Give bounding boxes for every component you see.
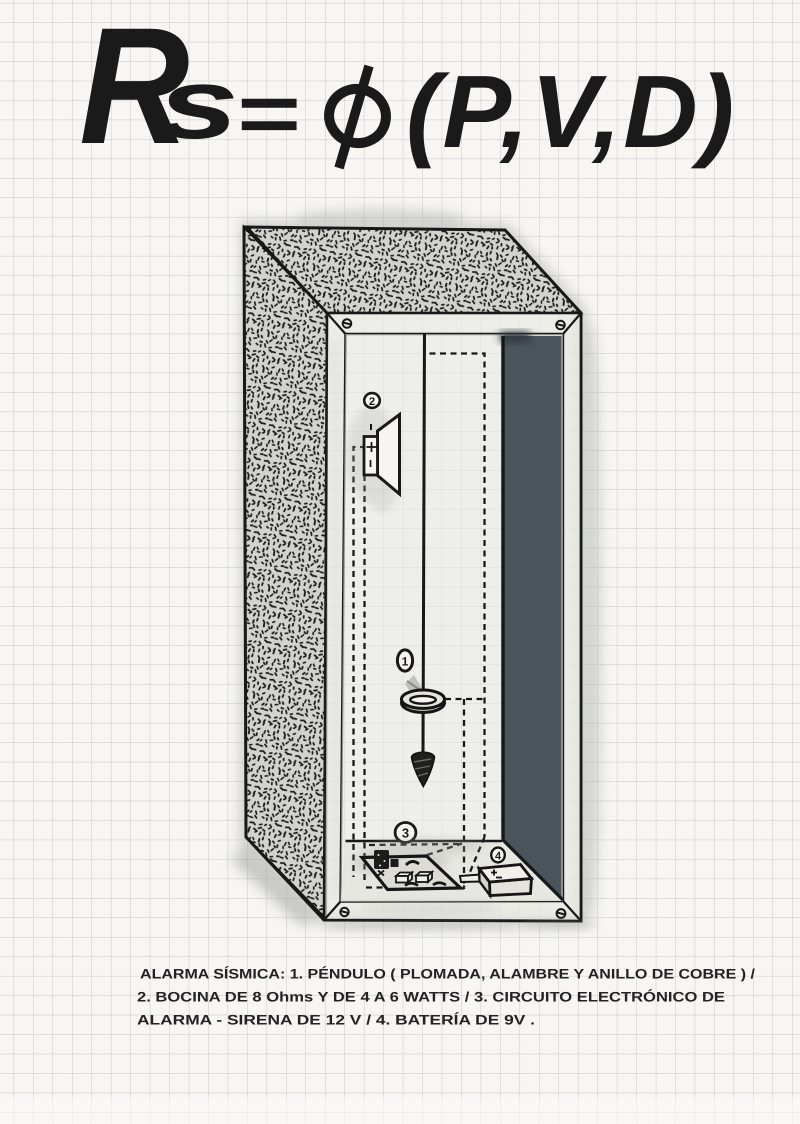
svg-text:=: = [235, 68, 299, 161]
svg-text:s: s [158, 48, 239, 160]
svg-text:2. BOCINA DE 8 Ohms Y DE 4 A 6: 2. BOCINA DE 8 Ohms Y DE 4 A 6 WATTS / 3… [137, 989, 725, 1005]
svg-text:2: 2 [369, 396, 375, 408]
svg-text:ALARMA - SIRENA DE 12 V / 4. B: ALARMA - SIRENA DE 12 V / 4. BATERÍA DE … [137, 1012, 535, 1028]
svg-text:(P,V,D): (P,V,D) [406, 54, 736, 169]
svg-text:3: 3 [402, 826, 409, 841]
svg-text:ALARMA SÍSMICA: 1. PÉNDULO ( P: ALARMA SÍSMICA: 1. PÉNDULO ( PLOMADA, AL… [140, 966, 755, 982]
svg-text:4: 4 [495, 851, 502, 863]
svg-text:1: 1 [402, 655, 409, 669]
